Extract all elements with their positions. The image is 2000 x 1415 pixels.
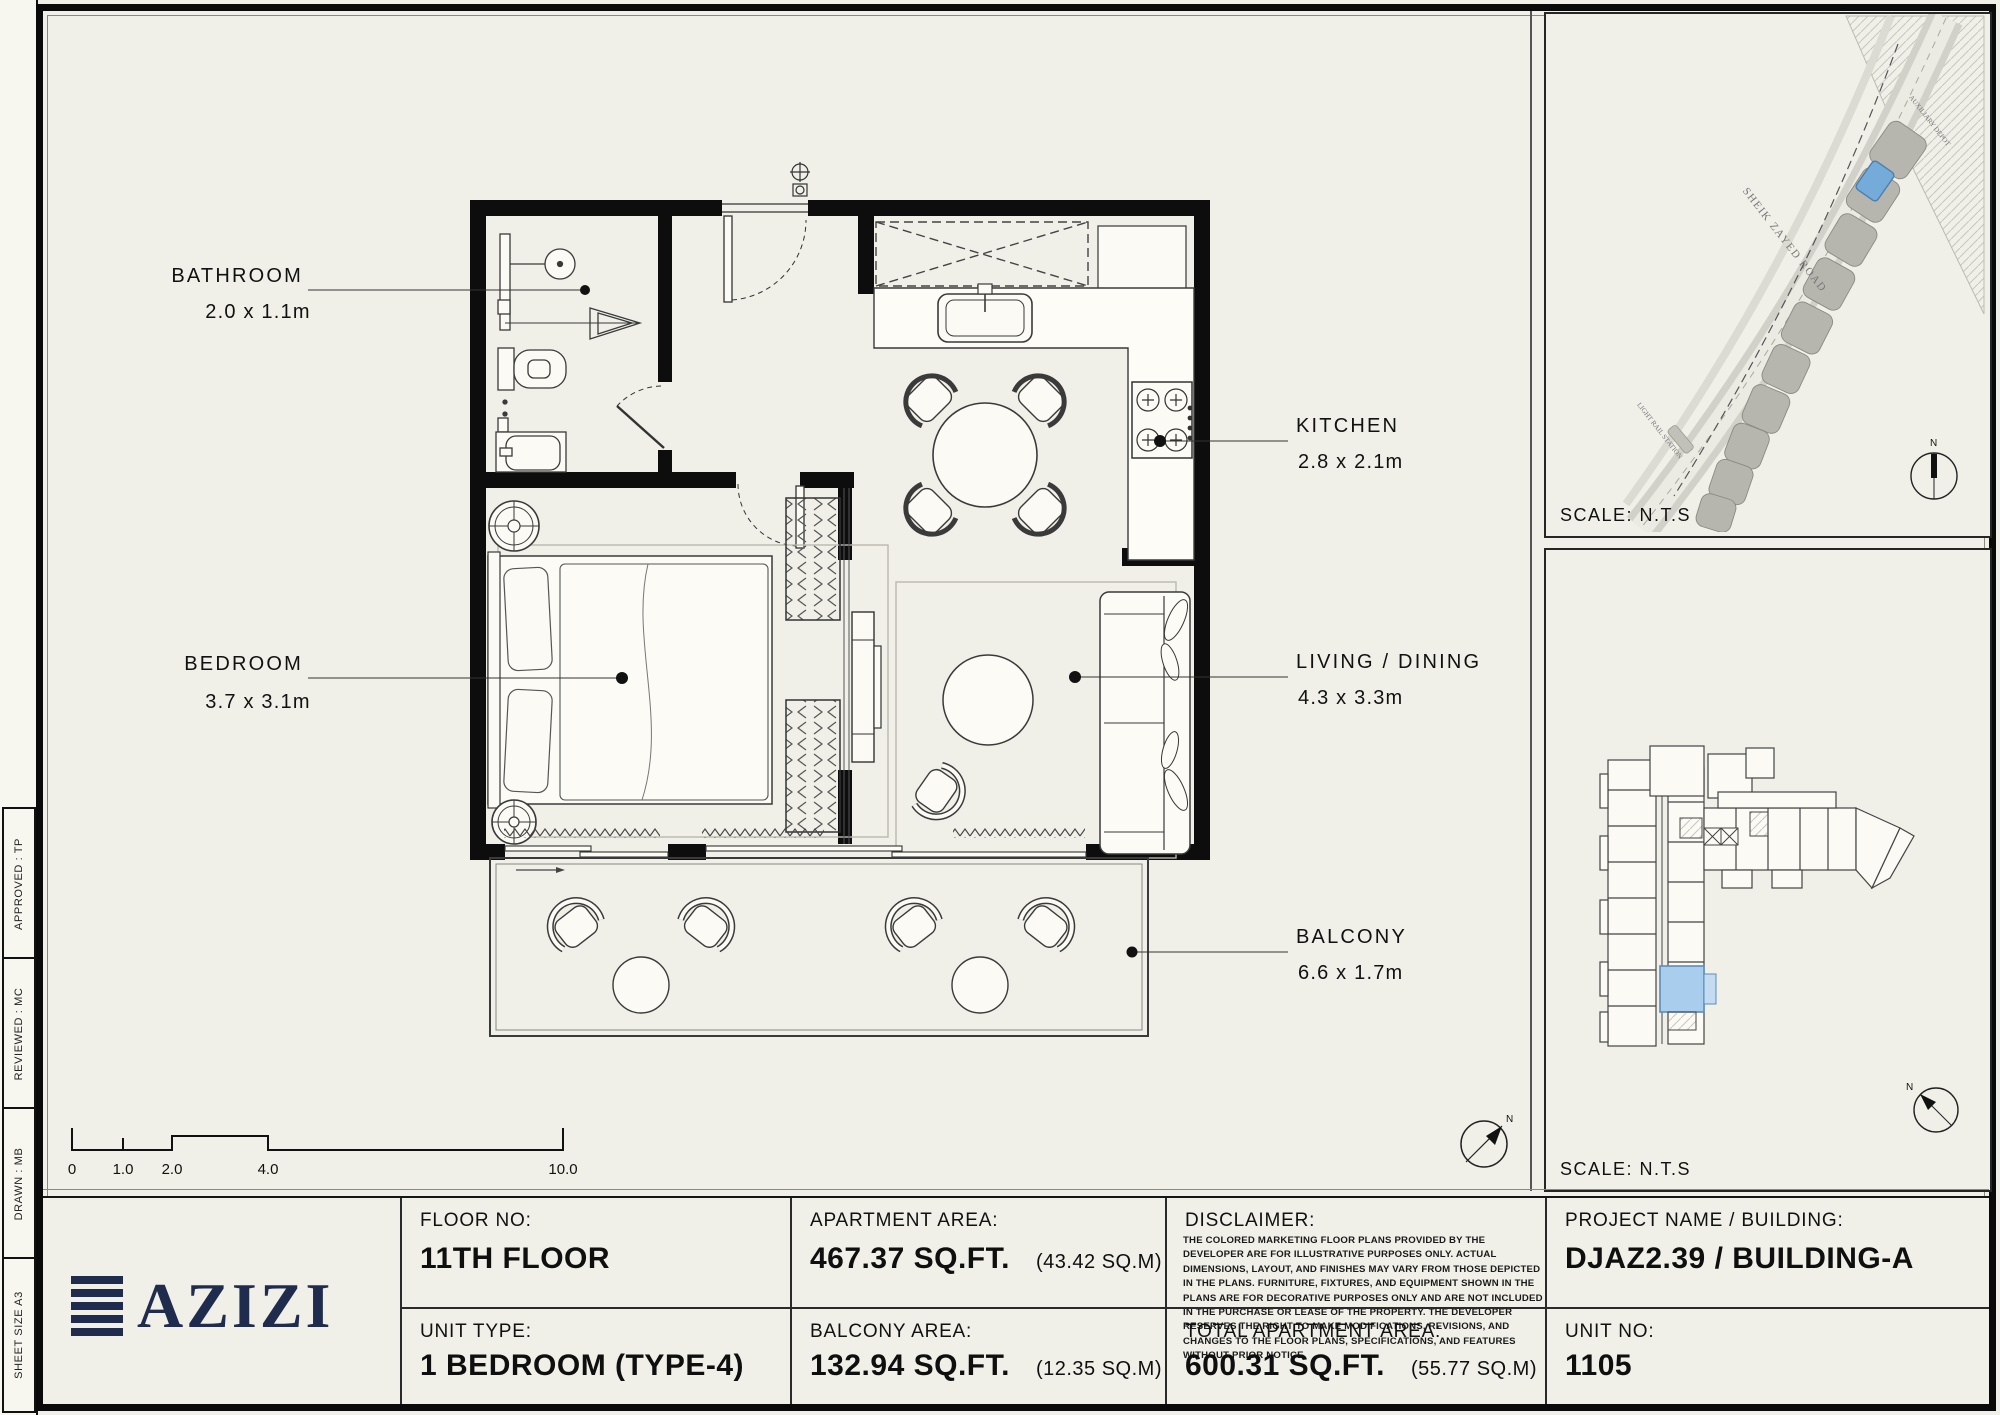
- balcony-label: BALCONY: [1296, 926, 1407, 948]
- balcony-area: [490, 858, 1148, 1036]
- scale-bar: [72, 1128, 563, 1150]
- total-area-metric: (55.77 SQ.M): [1411, 1358, 1537, 1380]
- unit-no-value: 1105: [1565, 1349, 1632, 1383]
- bedroom-dims: 3.7 x 3.1m: [205, 691, 310, 713]
- scale-tick-4: 10.0: [548, 1161, 577, 1178]
- apartment-area-metric: (43.42 SQ.M): [1036, 1251, 1162, 1273]
- balcony-area-metric: (12.35 SQ.M): [1036, 1358, 1162, 1380]
- floor-no-label: FLOOR NO:: [420, 1210, 532, 1232]
- map-scale-label: SCALE: N.T.S: [1560, 505, 1691, 526]
- total-area-cell: TOTAL APARTMENT AREA: 600.31 SQ.FT.(55.7…: [1165, 1307, 1545, 1404]
- wardrobe-icon: [786, 488, 849, 844]
- svg-text:N: N: [1506, 1114, 1513, 1125]
- drawn-label: DRAWN : MB: [13, 1148, 25, 1221]
- floor-plan-drawing: BATHROOM 2.0 x 1.1m BEDROOM 3.7 x 3.1m K…: [36, 4, 1532, 1194]
- scale-tick-1: 1.0: [113, 1161, 134, 1178]
- bathroom-dims: 2.0 x 1.1m: [205, 301, 310, 323]
- north-compass-icon: N: [1461, 1114, 1513, 1167]
- unit-type-label: UNIT TYPE:: [420, 1321, 532, 1343]
- project-name-label: PROJECT NAME / BUILDING:: [1565, 1210, 1844, 1232]
- panel-divider: [1530, 11, 1532, 1191]
- scale-tick-2: 2.0: [162, 1161, 183, 1178]
- balcony-furniture: [540, 890, 1083, 1013]
- coffee-table-icon: [943, 655, 1033, 745]
- scale-tick-3: 4.0: [258, 1161, 279, 1178]
- revision-sidebar: APPROVED : TP REVIEWED : MC DRAWN : MB S…: [0, 0, 38, 1415]
- logo-wordmark: AZIZI: [137, 1274, 333, 1338]
- apartment-area-value: 467.37 SQ.FT.(43.42 SQ.M): [810, 1242, 1162, 1276]
- unit-type-cell: UNIT TYPE: 1 BEDROOM (TYPE-4): [400, 1307, 790, 1404]
- svg-text:N: N: [1930, 438, 1937, 449]
- disclaimer-label: DISCLAIMER:: [1185, 1210, 1315, 1232]
- tv-console-icon: [852, 612, 881, 762]
- living-furniture: [896, 582, 1192, 858]
- sidebar-cell-reviewed: REVIEWED : MC: [2, 957, 36, 1111]
- living-dims: 4.3 x 3.3m: [1298, 687, 1403, 709]
- total-area-value: 600.31 SQ.FT.(55.77 SQ.M): [1185, 1349, 1537, 1383]
- apartment-area-cell: APARTMENT AREA: 467.37 SQ.FT.(43.42 SQ.M…: [790, 1198, 1165, 1307]
- balcony-dims: 6.6 x 1.7m: [1298, 962, 1403, 984]
- stove-icon: [1132, 382, 1192, 458]
- bathroom-door: [617, 386, 664, 448]
- living-label: LIVING / DINING: [1296, 651, 1481, 673]
- sheet-size-label: SHEET SIZE A3: [13, 1291, 25, 1379]
- apartment-area-label: APARTMENT AREA:: [810, 1210, 998, 1232]
- bedside-table-icon: [489, 501, 539, 551]
- svg-text:N: N: [1906, 1082, 1913, 1093]
- highlighted-unit: [1660, 966, 1716, 1030]
- balcony-area-cell: BALCONY AREA: 132.94 SQ.FT.(12.35 SQ.M): [790, 1307, 1165, 1404]
- bathroom-label: BATHROOM: [171, 265, 303, 287]
- kitchen-label: KITCHEN: [1296, 415, 1399, 437]
- logo-bars-icon: [71, 1276, 123, 1336]
- entry-door: [722, 204, 808, 302]
- reviewed-label: REVIEWED : MC: [13, 988, 25, 1081]
- map-compass-icon: N: [1911, 438, 1957, 499]
- accent-chair-icon: [908, 760, 972, 827]
- logo-cell: AZIZI: [43, 1198, 400, 1404]
- dining-table: [895, 365, 1075, 545]
- unit-no-cell: UNIT NO: 1105: [1545, 1307, 1989, 1404]
- sofa-icon: [1100, 592, 1192, 854]
- unit-no-label: UNIT NO:: [1565, 1321, 1654, 1343]
- key-plan-panel: N SCALE: N.T.S: [1544, 548, 1992, 1192]
- door-peephole-icon: [790, 162, 810, 196]
- bedroom-furniture: [488, 488, 888, 844]
- sidebar-cell-drawn: DRAWN : MB: [2, 1107, 36, 1261]
- parcel-chain: [1694, 118, 1930, 532]
- floorplan-sheet: APPROVED : TP REVIEWED : MC DRAWN : MB S…: [0, 0, 2000, 1415]
- total-area-label: TOTAL APARTMENT AREA:: [1185, 1321, 1441, 1343]
- balcony-area-value: 132.94 SQ.FT.(12.35 SQ.M): [810, 1349, 1162, 1383]
- title-block: AZIZI FLOOR NO: 11TH FLOOR UNIT TYPE: 1 …: [43, 1196, 1989, 1404]
- disclaimer-cell: DISCLAIMER: THE COLORED MARKETING FLOOR …: [1165, 1198, 1545, 1307]
- project-name-value: DJAZ2.39 / BUILDING-A: [1565, 1242, 1914, 1276]
- approved-label: APPROVED : TP: [13, 838, 25, 930]
- building-footprint: [1600, 746, 1914, 1046]
- project-name-cell: PROJECT NAME / BUILDING: DJAZ2.39 / BUIL…: [1545, 1198, 1989, 1307]
- bed-icon: [488, 552, 772, 808]
- floor-no-value: 11TH FLOOR: [420, 1242, 610, 1276]
- floor-no-cell: FLOOR NO: 11TH FLOOR: [400, 1198, 790, 1307]
- azizi-logo: AZIZI: [71, 1274, 333, 1338]
- keyplan-compass-icon: N: [1906, 1082, 1958, 1132]
- unit-type-value: 1 BEDROOM (TYPE-4): [420, 1349, 744, 1383]
- location-map-panel: SHEIK ZAYED ROAD LIGHT RAIL STATION AUXI…: [1544, 12, 1992, 538]
- balcony-area-label: BALCONY AREA:: [810, 1321, 972, 1343]
- sidebar-cell-sheetsize: SHEET SIZE A3: [2, 1257, 36, 1413]
- titleblock-top-rule: [43, 1189, 1989, 1190]
- bathroom-fixtures: [496, 234, 640, 472]
- scale-tick-0: 0: [68, 1161, 76, 1178]
- location-map-drawing: SHEIK ZAYED ROAD LIGHT RAIL STATION AUXI…: [1546, 14, 1986, 532]
- bedroom-label: BEDROOM: [184, 653, 303, 675]
- keyplan-scale-label: SCALE: N.T.S: [1560, 1159, 1691, 1180]
- balcony-doors: [504, 828, 1086, 873]
- kitchen-dims: 2.8 x 2.1m: [1298, 451, 1403, 473]
- sidebar-cell-approved: APPROVED : TP: [2, 807, 36, 961]
- key-plan-drawing: N: [1546, 550, 1986, 1186]
